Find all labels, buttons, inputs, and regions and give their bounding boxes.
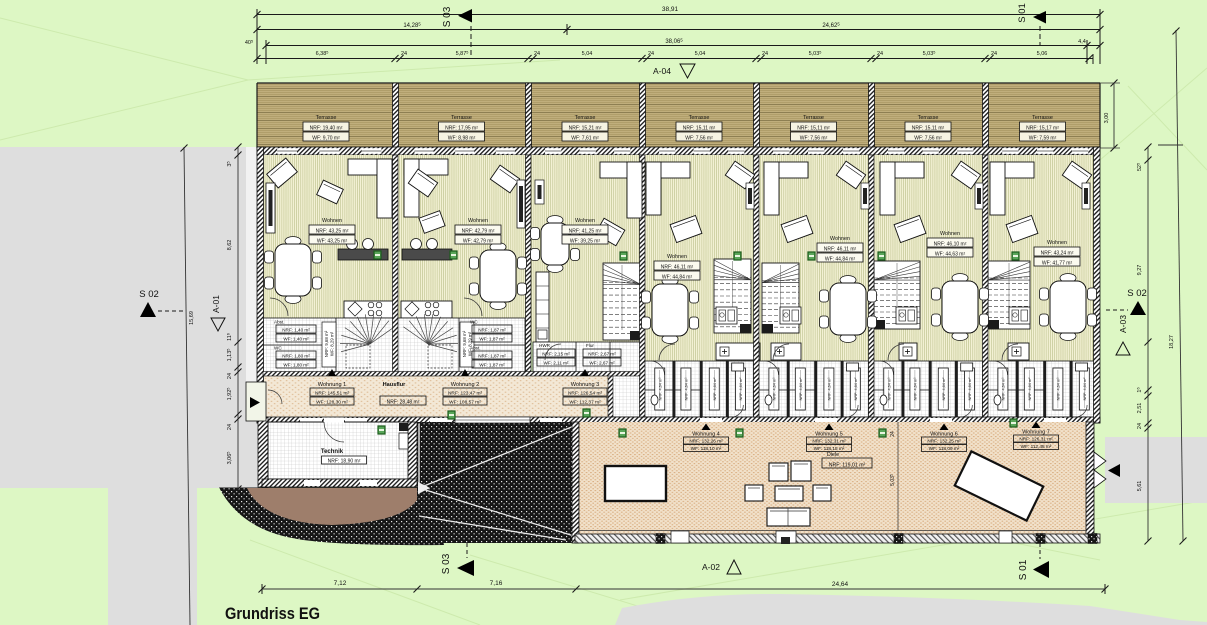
svg-text:Wohnung 3: Wohnung 3 <box>571 382 600 388</box>
svg-text:8,62: 8,62 <box>227 240 233 251</box>
svg-text:WF: 7,56 m²: WF: 7,56 m² <box>914 135 942 141</box>
svg-text:WF: 44,84 m²: WF: 44,84 m² <box>662 274 693 280</box>
svg-text:WF: 8,29 m²: WF: 8,29 m² <box>330 331 335 356</box>
svg-text:NRF: 15,17 m²: NRF: 15,17 m² <box>1026 125 1059 131</box>
svg-text:NRF: 145,51 m²: NRF: 145,51 m² <box>315 390 350 396</box>
svg-text:S 03: S 03 <box>441 553 452 574</box>
svg-text:NRF: 1,87 m²: NRF: 1,87 m² <box>478 353 506 358</box>
svg-text:NRF: 46,11 m²: NRF: 46,11 m² <box>661 264 694 270</box>
svg-text:NRF: 4,64 m²: NRF: 4,64 m² <box>1028 377 1032 401</box>
svg-text:WF: 8,98 m²: WF: 8,98 m² <box>448 135 476 141</box>
svg-text:Wohnen: Wohnen <box>940 231 960 237</box>
svg-text:S 02: S 02 <box>1127 288 1147 299</box>
svg-text:NRF: 28,48 m²: NRF: 28,48 m² <box>387 399 420 405</box>
svg-text:NRF: 42,79 m²: NRF: 42,79 m² <box>462 228 495 234</box>
svg-text:5,61: 5,61 <box>1137 481 1143 492</box>
svg-text:WF: 118,09 m²: WF: 118,09 m² <box>929 446 960 451</box>
svg-text:A-02: A-02 <box>702 562 720 572</box>
svg-text:24: 24 <box>227 373 233 379</box>
svg-text:NRF: 1,40 m²: NRF: 1,40 m² <box>282 327 310 332</box>
svg-text:NRF: 4,64 m²: NRF: 4,64 m² <box>739 377 743 401</box>
svg-text:NRF: 4,64 m²: NRF: 4,64 m² <box>827 377 831 401</box>
svg-text:Wohnung 2: Wohnung 2 <box>451 382 480 388</box>
svg-text:WC: WC <box>274 346 282 351</box>
svg-text:WF: 112,37 m²: WF: 112,37 m² <box>569 399 601 405</box>
svg-text:NRF: 4,64 m²: NRF: 4,64 m² <box>942 377 946 401</box>
svg-text:NRF: 4,64 m²: NRF: 4,64 m² <box>772 377 776 401</box>
svg-text:Terrasse: Terrasse <box>803 115 824 121</box>
svg-text:WF: 7,56 m²: WF: 7,56 m² <box>800 135 828 141</box>
svg-text:NRF: 18,90 m²: NRF: 18,90 m² <box>328 458 361 464</box>
svg-text:WF: 1,80 m²: WF: 1,80 m² <box>283 362 309 367</box>
svg-text:Wohnen: Wohnen <box>322 218 342 224</box>
svg-text:NRF: 4,64 m²: NRF: 4,64 m² <box>799 377 803 401</box>
svg-text:Hausflur: Hausflur <box>383 382 407 388</box>
svg-text:NRF: 4,64 m²: NRF: 4,64 m² <box>968 377 972 401</box>
svg-text:2,51: 2,51 <box>1137 403 1143 414</box>
svg-text:24: 24 <box>890 431 896 437</box>
svg-text:24: 24 <box>762 51 768 57</box>
svg-text:NRF: 19,40 m²: NRF: 19,40 m² <box>310 125 343 131</box>
svg-text:A-03: A-03 <box>1118 315 1128 333</box>
svg-text:WF: 7,56 m²: WF: 7,56 m² <box>685 135 713 141</box>
svg-text:NRF: 4,64 m²: NRF: 4,64 m² <box>1001 377 1005 401</box>
svg-text:WF: 9,70 m²: WF: 9,70 m² <box>312 135 340 141</box>
svg-text:NRF: 4,64 m²: NRF: 4,64 m² <box>658 377 662 401</box>
svg-text:WF: 39,25 m²: WF: 39,25 m² <box>570 238 601 244</box>
svg-text:NRF: 132,25 m²: NRF: 132,25 m² <box>927 438 961 443</box>
svg-text:S 01: S 01 <box>1017 3 1028 23</box>
svg-text:NRF: 15,11 m²: NRF: 15,11 m² <box>912 125 945 131</box>
svg-text:5,04: 5,04 <box>582 51 593 57</box>
svg-text:WF: 44,84 m²: WF: 44,84 m² <box>825 256 856 262</box>
svg-text:24: 24 <box>1137 423 1143 429</box>
svg-text:NRF: 2,67 m²: NRF: 2,67 m² <box>588 351 616 356</box>
svg-text:Wohnen: Wohnen <box>830 236 850 242</box>
svg-text:NRF: 4,64 m²: NRF: 4,64 m² <box>854 377 858 401</box>
svg-text:18,27: 18,27 <box>1169 335 1175 349</box>
svg-text:Wohnen: Wohnen <box>575 218 595 224</box>
svg-text:24: 24 <box>401 51 407 57</box>
svg-text:WF: 43,25 m²: WF: 43,25 m² <box>317 238 348 244</box>
svg-text:NRF: 126,31 m²: NRF: 126,31 m² <box>1019 436 1053 441</box>
svg-text:7,12: 7,12 <box>334 580 347 587</box>
svg-text:NRF: 17,95 m²: NRF: 17,95 m² <box>445 125 478 131</box>
svg-text:WF: 118,10 m²: WF: 118,10 m² <box>691 446 722 451</box>
svg-text:Terrasse: Terrasse <box>451 115 472 121</box>
svg-text:WF: 128,30 m²: WF: 128,30 m² <box>316 399 348 405</box>
svg-text:WF: 112,48 m²: WF: 112,48 m² <box>1021 444 1052 449</box>
svg-text:Grundriss EG: Grundriss EG <box>225 604 320 623</box>
svg-text:NRF: 1,80 m²: NRF: 1,80 m² <box>282 353 310 358</box>
svg-text:NRF: 4,64 m²: NRF: 4,64 m² <box>887 377 891 401</box>
svg-text:WF: 2,67 m²: WF: 2,67 m² <box>589 360 615 365</box>
svg-text:Wohnen: Wohnen <box>468 218 488 224</box>
svg-text:HWR: HWR <box>539 343 551 348</box>
svg-text:7,16: 7,16 <box>490 580 503 587</box>
svg-text:WF: 118,15 m²: WF: 118,15 m² <box>814 446 845 451</box>
svg-text:NRF: 4,64 m²: NRF: 4,64 m² <box>684 377 688 401</box>
svg-text:Terrasse: Terrasse <box>1032 115 1053 121</box>
svg-text:Terrasse: Terrasse <box>918 115 939 121</box>
svg-text:4,4: 4,4 <box>1078 39 1086 45</box>
svg-text:A-01: A-01 <box>211 295 221 313</box>
svg-text:WF: 7,59 m²: WF: 7,59 m² <box>1029 135 1057 141</box>
svg-text:NRF: 132,26 m²: NRF: 132,26 m² <box>689 438 723 443</box>
svg-text:NRF: 15,21 m²: NRF: 15,21 m² <box>569 125 602 131</box>
svg-text:Flur: Flur <box>586 343 594 348</box>
svg-text:24,64: 24,64 <box>832 581 849 588</box>
svg-text:NRF: 4,64 m²: NRF: 4,64 m² <box>913 377 917 401</box>
svg-text:5,06: 5,06 <box>1037 51 1048 57</box>
svg-text:Abst.: Abst. <box>470 346 480 351</box>
svg-text:S 01: S 01 <box>1018 559 1029 580</box>
svg-text:Diele: Diele <box>827 452 839 458</box>
svg-text:Wohnung 1: Wohnung 1 <box>318 382 347 388</box>
svg-text:24: 24 <box>991 51 997 57</box>
svg-text:NRF: 15,11 m²: NRF: 15,11 m² <box>797 125 830 131</box>
svg-text:NRF: 4,64 m²: NRF: 4,64 m² <box>1083 377 1087 401</box>
svg-text:24: 24 <box>648 51 654 57</box>
svg-text:NRF: 123,47 m²: NRF: 123,47 m² <box>448 390 483 396</box>
svg-text:Wohnen: Wohnen <box>667 254 687 260</box>
svg-text:NRF: 43,24 m²: NRF: 43,24 m² <box>1041 250 1074 256</box>
svg-text:NRF: 41,25 m²: NRF: 41,25 m² <box>569 228 602 234</box>
svg-text:NRF: 43,25 m²: NRF: 43,25 m² <box>316 228 349 234</box>
svg-text:NRF: 46,11 m²: NRF: 46,11 m² <box>824 246 857 252</box>
svg-text:NRF: 46,10 m²: NRF: 46,10 m² <box>934 241 967 247</box>
svg-text:Wohnen: Wohnen <box>1047 240 1067 246</box>
svg-text:Abst.: Abst. <box>274 320 284 325</box>
svg-text:24: 24 <box>227 424 233 430</box>
svg-text:NRF: 9,68 m²: NRF: 9,68 m² <box>462 330 467 357</box>
svg-text:NRF: 15,11 m²: NRF: 15,11 m² <box>683 125 716 131</box>
svg-text:Terrasse: Terrasse <box>316 115 337 121</box>
svg-text:NRF: 4,64 m²: NRF: 4,64 m² <box>713 377 717 401</box>
svg-text:Terrasse: Terrasse <box>575 115 596 121</box>
svg-text:NRF: 1,87 m²: NRF: 1,87 m² <box>478 327 506 332</box>
svg-text:A-04: A-04 <box>653 66 671 76</box>
svg-text:38,91: 38,91 <box>662 6 679 13</box>
svg-text:WC: WC <box>470 320 478 325</box>
svg-text:NRF: 132,31 m²: NRF: 132,31 m² <box>812 438 846 443</box>
svg-text:NRF: 126,54 m²: NRF: 126,54 m² <box>568 390 603 396</box>
svg-text:24: 24 <box>877 51 883 57</box>
svg-text:S 03: S 03 <box>442 6 453 27</box>
svg-text:WF: 108,57 m²: WF: 108,57 m² <box>449 399 481 405</box>
svg-text:NRF: 4,64 m²: NRF: 4,64 m² <box>1056 377 1060 401</box>
svg-text:Terrasse: Terrasse <box>689 115 710 121</box>
svg-text:NRF: 119,01 m²: NRF: 119,01 m² <box>829 462 866 468</box>
svg-text:WF: 1,87 m²: WF: 1,87 m² <box>479 336 505 341</box>
svg-text:WF: 7,61 m²: WF: 7,61 m² <box>571 135 599 141</box>
svg-text:WF: 1,40 m²: WF: 1,40 m² <box>283 336 309 341</box>
svg-text:24: 24 <box>534 51 540 57</box>
svg-text:WF: 2,11 m²: WF: 2,11 m² <box>544 360 569 365</box>
svg-text:WF: 44,63 m²: WF: 44,63 m² <box>935 251 966 257</box>
svg-text:S 02: S 02 <box>139 289 159 300</box>
svg-text:Technik: Technik <box>321 449 344 455</box>
svg-text:3,00: 3,00 <box>1104 113 1110 124</box>
svg-text:15,69: 15,69 <box>189 311 195 325</box>
svg-text:5,04: 5,04 <box>695 51 706 57</box>
svg-text:WF: 1,87 m²: WF: 1,87 m² <box>479 362 505 367</box>
svg-text:NRF: 9,68 m²: NRF: 9,68 m² <box>324 330 329 357</box>
svg-text:WF: 42,79 m²: WF: 42,79 m² <box>463 238 494 244</box>
svg-text:9,27: 9,27 <box>1137 265 1143 276</box>
svg-text:WF: 41,77 m²: WF: 41,77 m² <box>1042 260 1073 266</box>
